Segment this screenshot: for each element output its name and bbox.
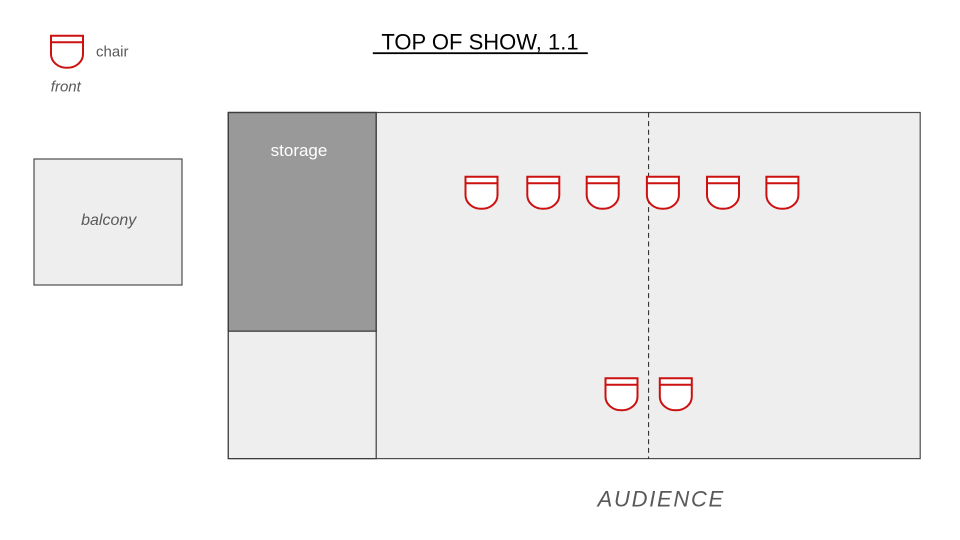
svg-text:front: front [51, 78, 82, 95]
svg-text:AUDIENCE: AUDIENCE [596, 486, 725, 511]
svg-text:balcony: balcony [81, 212, 137, 229]
svg-text:chair: chair [96, 44, 129, 61]
svg-text:storage: storage [271, 141, 328, 160]
svg-text:TOP OF SHOW, 1.1: TOP OF SHOW, 1.1 [381, 30, 578, 55]
